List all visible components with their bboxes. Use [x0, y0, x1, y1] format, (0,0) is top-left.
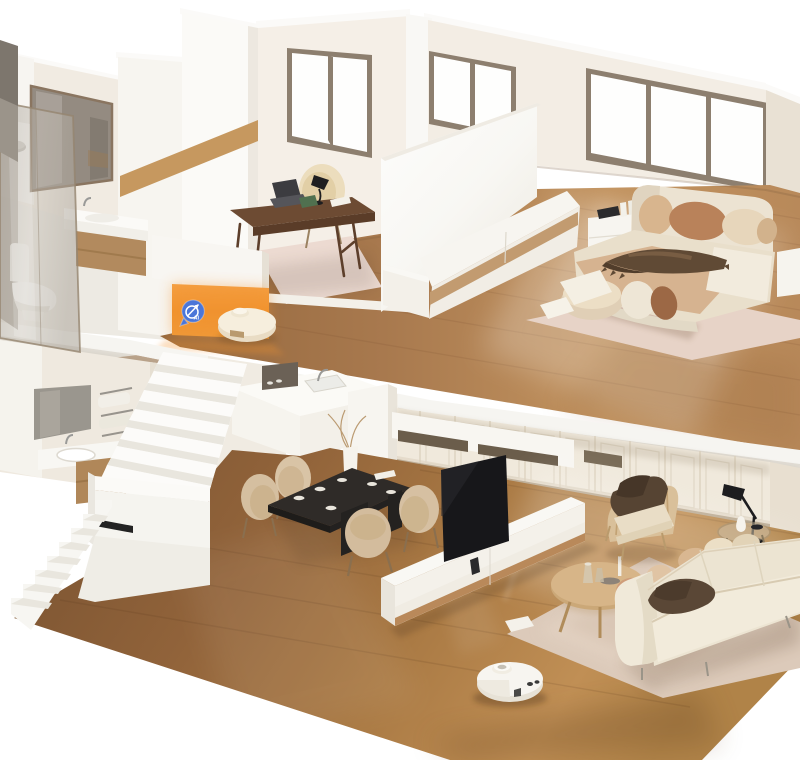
svg-text:AI: AI — [194, 316, 200, 322]
